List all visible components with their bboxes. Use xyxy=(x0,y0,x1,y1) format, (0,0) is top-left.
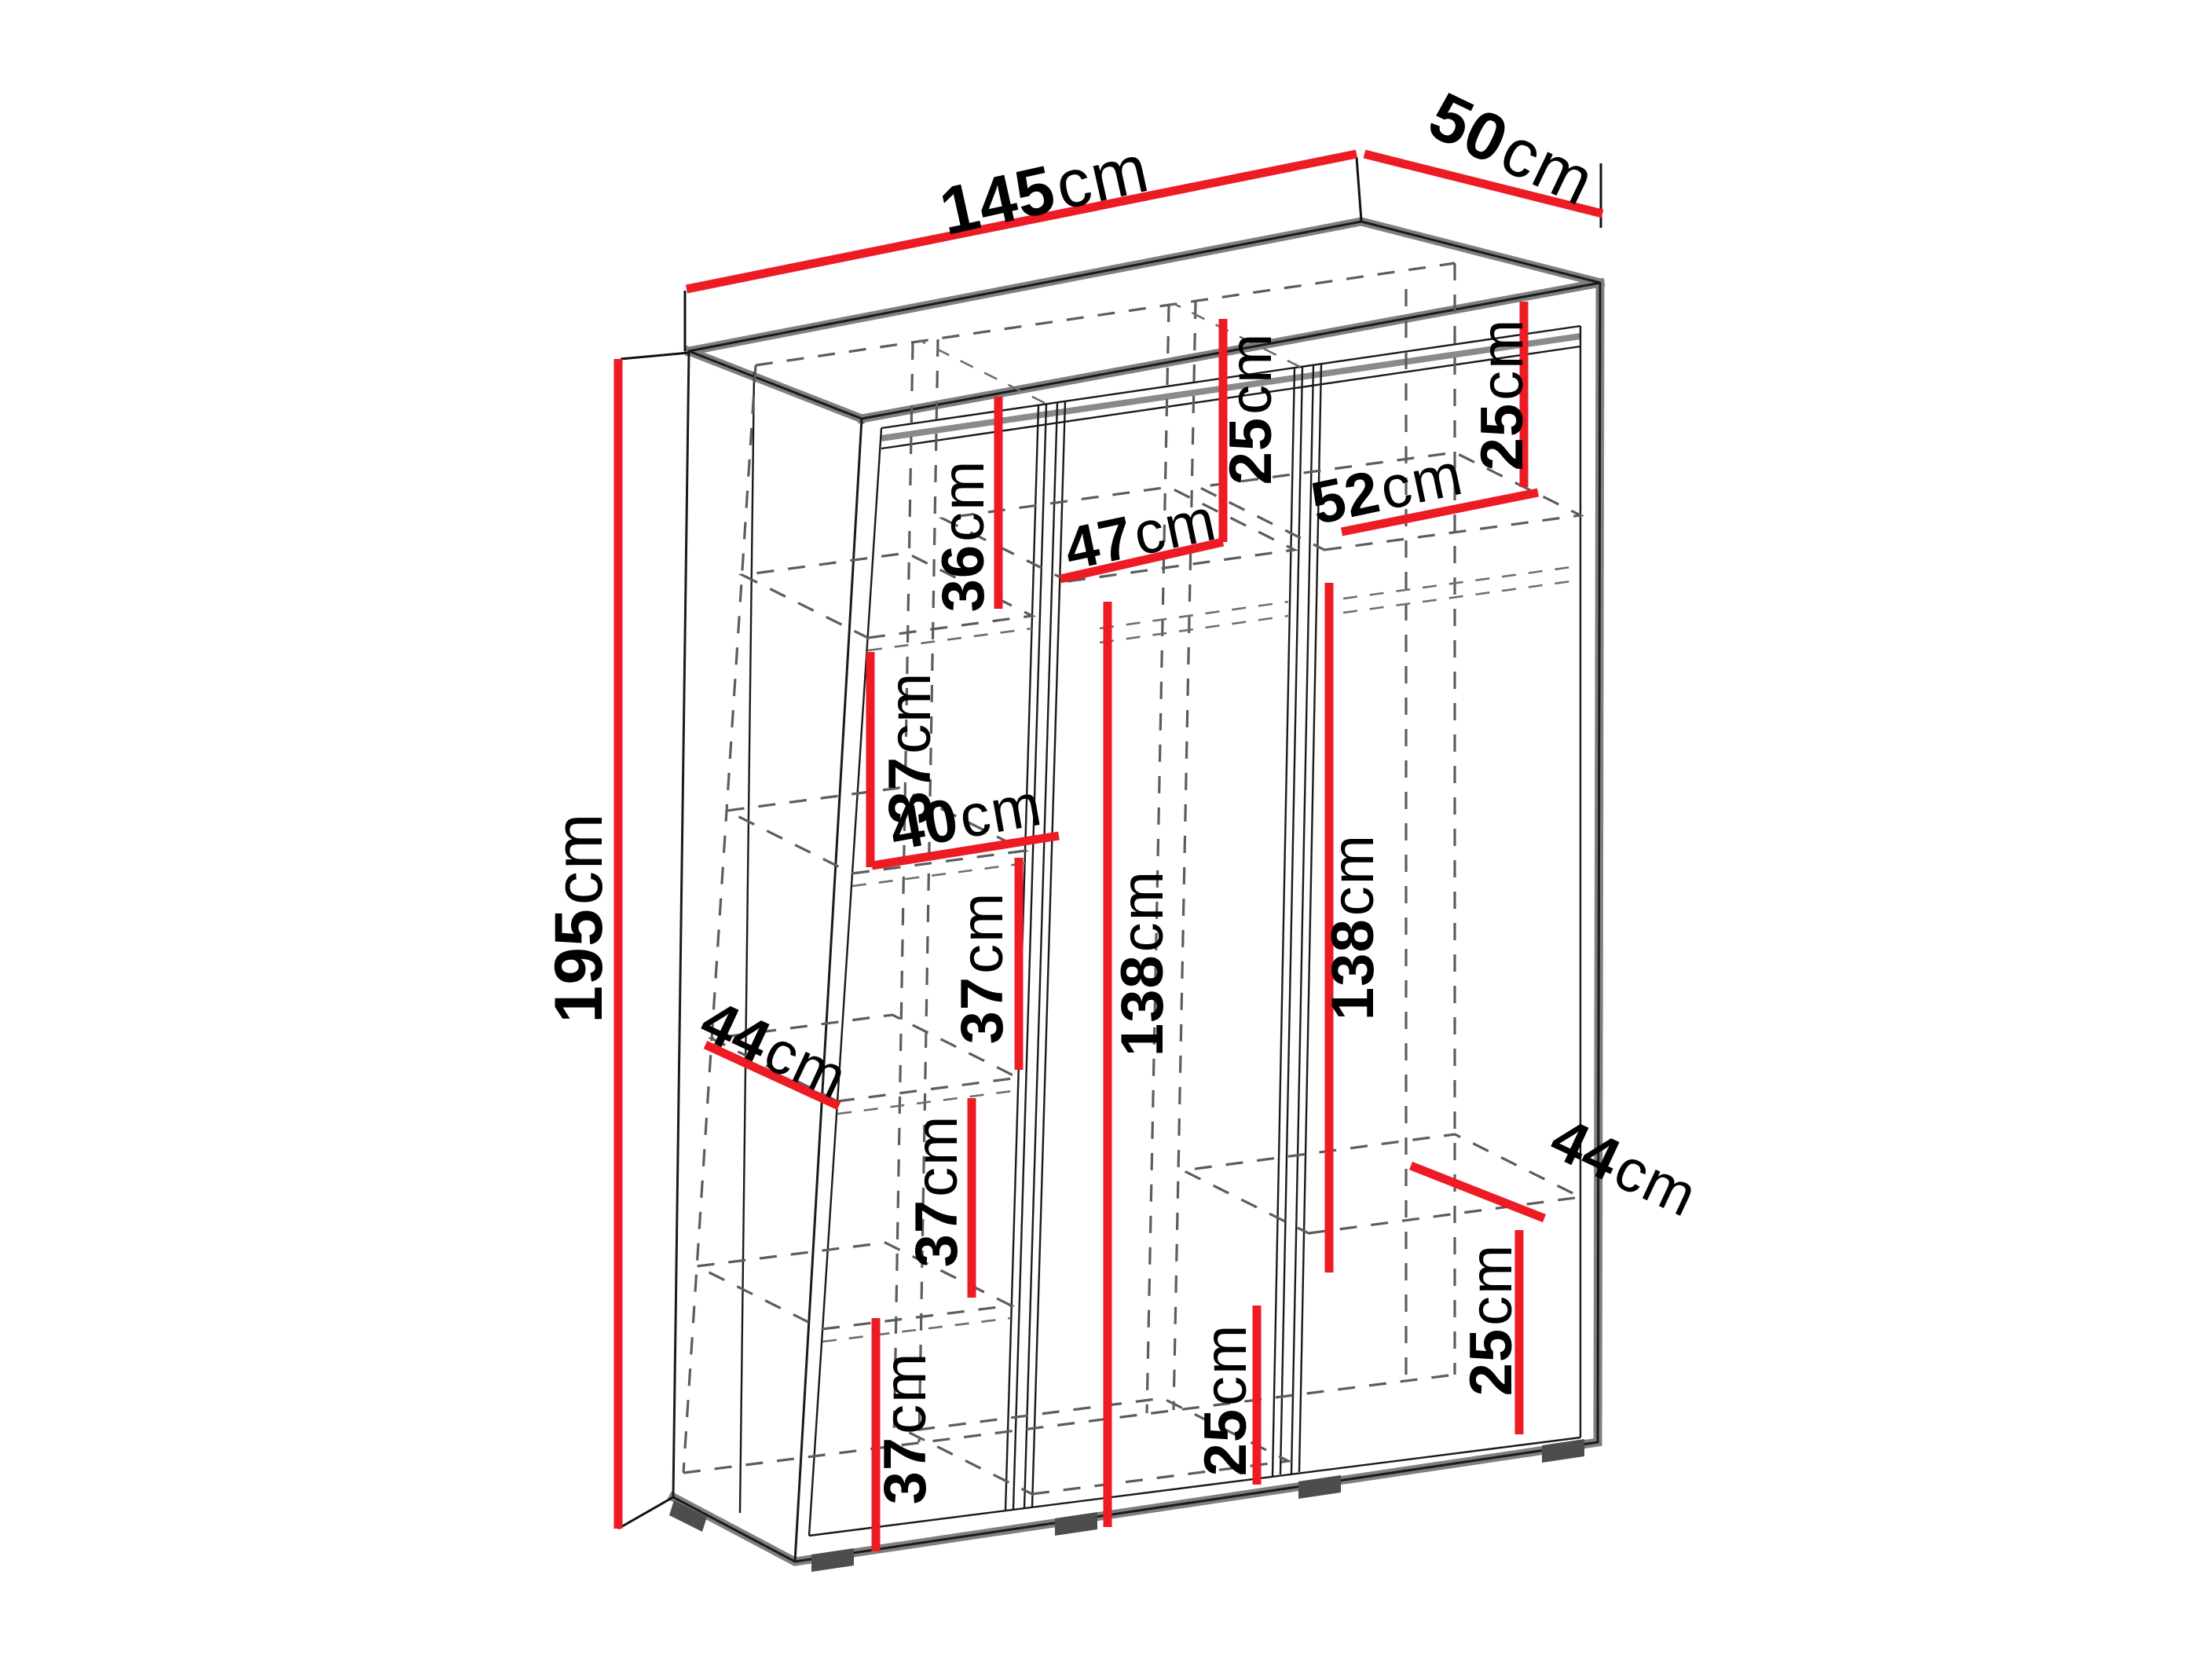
s3-138-label: 138cm xyxy=(1320,833,1386,1020)
s1-37d-label: 37cm xyxy=(872,1352,939,1505)
s1-37b-label: 37cm xyxy=(949,892,1016,1045)
depth-50-label: 50cm xyxy=(1418,78,1606,220)
s2-138-label: 138cm xyxy=(1109,870,1176,1057)
s2-25bot-label: 25cm xyxy=(1192,1324,1259,1477)
s1-37c-label: 37cm xyxy=(903,1115,970,1268)
s3-25bot-label: 25cm xyxy=(1458,1243,1525,1397)
s3-25top-label: 25cm xyxy=(1469,318,1536,471)
s2-25top-label: 25cm xyxy=(1218,332,1284,485)
height-195-label: 195cm xyxy=(541,811,617,1023)
page: 145cm 50cm 195cm 36cm 37cm 40cm 37cm 44c… xyxy=(0,0,2212,1659)
width-145-label: 145cm xyxy=(933,130,1156,250)
s1-36-label: 36cm xyxy=(930,460,997,613)
wardrobe-dimension-diagram: 145cm 50cm 195cm 36cm 37cm 40cm 37cm 44c… xyxy=(0,0,2212,1659)
